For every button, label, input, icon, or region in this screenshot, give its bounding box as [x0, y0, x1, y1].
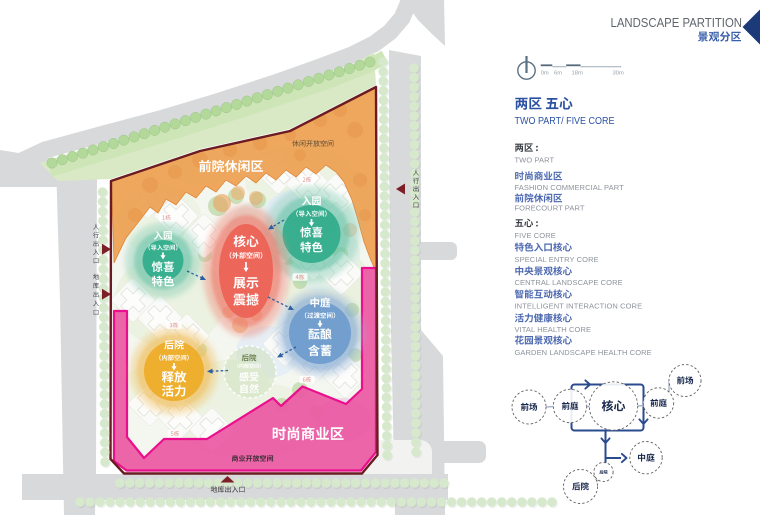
svg-text:FORECOURT PART: FORECOURT PART	[515, 204, 585, 213]
svg-text:VITAL HEALTH CORE: VITAL HEALTH CORE	[515, 325, 592, 334]
svg-text:FASHION COMMERCIAL PART: FASHION COMMERCIAL PART	[515, 183, 625, 192]
svg-text:LANDSCAPE PARTITION: LANDSCAPE PARTITION	[611, 15, 743, 30]
svg-text:0m: 0m	[541, 71, 549, 77]
svg-text:SPECIAL ENTRY CORE: SPECIAL ENTRY CORE	[515, 255, 599, 264]
svg-text:TWO PART: TWO PART	[515, 155, 555, 164]
svg-text:18m: 18m	[572, 71, 583, 77]
svg-text:INTELLIGENT INTERACTION CORE: INTELLIGENT INTERACTION CORE	[515, 302, 643, 311]
svg-text:TWO PART/ FIVE CORE: TWO PART/ FIVE CORE	[515, 116, 615, 127]
svg-text:30m: 30m	[613, 71, 624, 77]
svg-text:GARDEN LANDSCAPE HEALTH CORE: GARDEN LANDSCAPE HEALTH CORE	[515, 348, 652, 357]
svg-text:CENTRAL LANDSCAPE CORE: CENTRAL LANDSCAPE CORE	[515, 278, 623, 287]
svg-text:FIVE CORE: FIVE CORE	[515, 231, 556, 240]
svg-text:6m: 6m	[554, 71, 562, 77]
